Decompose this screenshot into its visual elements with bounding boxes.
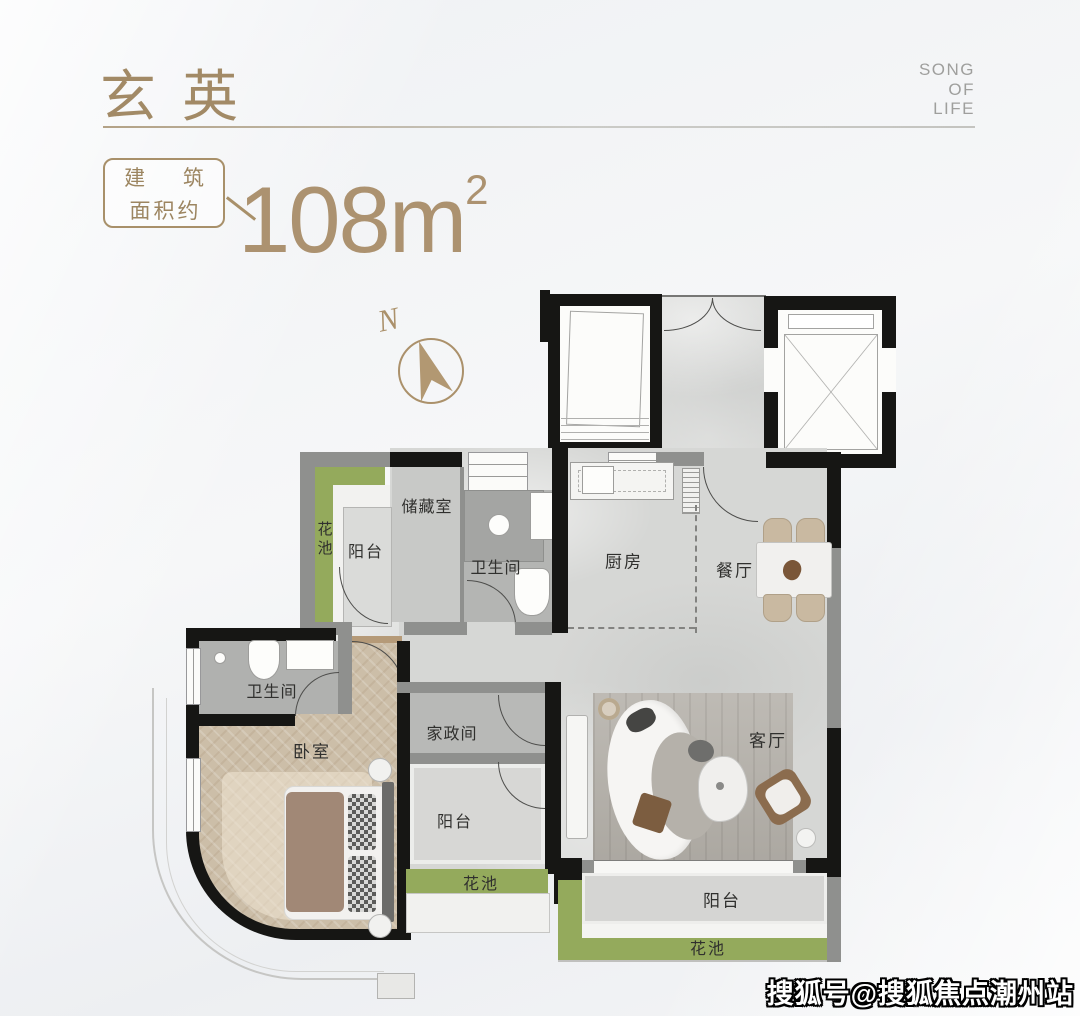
- room-label-storage: 储藏室: [401, 493, 452, 517]
- room-label-dining: 餐厅: [716, 557, 754, 582]
- wall: [827, 728, 841, 862]
- storage-floor: [392, 467, 460, 622]
- window-end-block: [582, 860, 594, 873]
- pillow: [348, 856, 376, 912]
- slogan-line: LIFE: [919, 99, 975, 119]
- room-label-flower-bed-tl: 花池: [314, 521, 335, 559]
- pillow: [348, 794, 376, 850]
- wall: [827, 877, 841, 962]
- slogan-line: OF: [919, 80, 975, 100]
- wall: [338, 632, 352, 714]
- room-label-kitchen: 厨房: [605, 548, 643, 573]
- kitchen-open-boundary: [695, 505, 697, 633]
- tv-console: [566, 715, 588, 839]
- room-label-flower-bed-mid: 花池: [463, 870, 499, 894]
- page-title: 玄英: [100, 52, 264, 133]
- elevator-side-slit: [764, 348, 778, 392]
- room-label-housekeeping: 家政间: [426, 720, 477, 744]
- window: [468, 452, 528, 492]
- room-label-living: 客厅: [749, 727, 787, 752]
- round-side-table: [796, 828, 816, 848]
- sink: [286, 640, 334, 670]
- title-underline: [103, 126, 975, 128]
- terrace-band: [406, 893, 550, 933]
- bed-headboard: [382, 782, 394, 922]
- sink: [488, 514, 510, 536]
- dining-chair: [763, 594, 792, 622]
- kitchen-open-boundary: [568, 627, 695, 629]
- elevator-door-sill: [788, 314, 874, 329]
- elevator-side-slit: [882, 348, 896, 392]
- window: [186, 648, 201, 705]
- stair-outline: [566, 311, 644, 428]
- window: [186, 758, 201, 832]
- toilet: [248, 640, 280, 680]
- wall: [552, 448, 568, 633]
- entry-threshold: [662, 295, 766, 297]
- room-label-bath-master: 卫生间: [246, 678, 297, 702]
- area-value: 108m2: [238, 140, 489, 270]
- area-superscript: 2: [465, 166, 488, 213]
- coffee-table: [698, 756, 748, 822]
- room-label-balcony-mid: 阳台: [437, 808, 473, 832]
- room-label-balcony-tl: 阳台: [348, 538, 384, 562]
- wall: [766, 452, 830, 468]
- vent-louver: [682, 468, 700, 514]
- window-end-block: [793, 860, 806, 873]
- room-label-flower-bed-bottom: 花池: [690, 935, 726, 959]
- plant: [598, 698, 620, 720]
- wall: [404, 622, 467, 635]
- elevator-car-x: [784, 334, 878, 450]
- area-label-line1: 建 筑: [105, 162, 223, 192]
- area-label-line2: 面积约: [105, 195, 223, 225]
- wall: [827, 452, 841, 548]
- wall: [545, 682, 561, 874]
- area-label-box: 建 筑 面积约: [103, 158, 225, 228]
- floorplan-image: 玄英 SONG OF LIFE 建 筑 面积约 108m2 N: [0, 0, 1080, 1016]
- kitchen-sink: [582, 466, 614, 494]
- wall: [515, 622, 552, 635]
- nightstand: [368, 914, 392, 938]
- terrace-outline: [558, 960, 840, 962]
- room-label-bedroom: 卧室: [293, 738, 331, 763]
- table-decor: [716, 782, 724, 790]
- north-label: N: [374, 300, 402, 340]
- room-label-balcony-bottom: 阳台: [703, 887, 741, 912]
- wall: [199, 714, 295, 726]
- bed-blanket: [286, 792, 344, 912]
- wall: [397, 682, 560, 693]
- room-label-bath-main: 卫生间: [470, 554, 521, 578]
- brand-slogan: SONG OF LIFE: [919, 60, 975, 119]
- stair-steps: [561, 416, 649, 440]
- nightstand: [368, 758, 392, 782]
- wall: [390, 452, 462, 467]
- watermark: 搜狐号@搜狐焦点潮州站: [767, 972, 1074, 1011]
- dining-chair: [796, 594, 825, 622]
- slogan-line: SONG: [919, 60, 975, 80]
- exterior-step: [377, 973, 415, 999]
- shower-head: [214, 652, 226, 664]
- flower-bed-bottom-left: [558, 880, 582, 938]
